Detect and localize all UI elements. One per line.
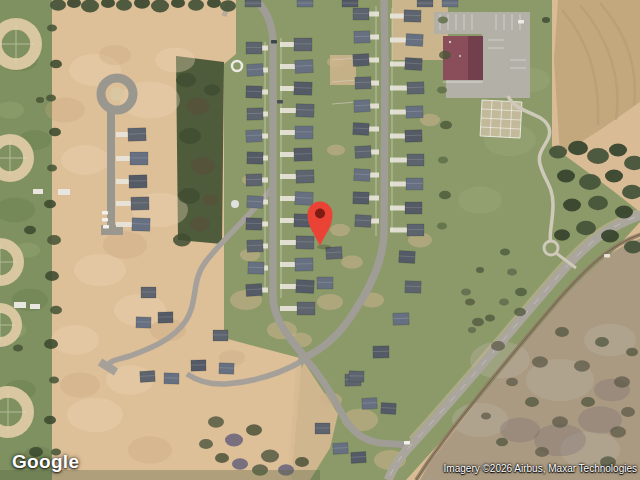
house [353,123,370,136]
house [246,42,262,54]
house [140,371,156,383]
house [417,0,433,7]
house [315,423,330,434]
house [131,197,149,210]
house [129,175,147,188]
house [355,215,372,228]
house [248,262,264,275]
google-logo[interactable]: Google [12,451,79,473]
house [442,0,458,7]
house [362,398,378,410]
house [353,192,369,205]
house [294,148,312,162]
house [355,146,372,159]
house [405,58,423,71]
house [128,128,146,142]
pin-inner-dot [315,209,325,219]
house [381,403,397,415]
house [294,38,312,51]
house [294,82,312,96]
house [132,218,150,232]
satellite-imagery [0,0,640,480]
house [405,281,421,294]
house [219,363,234,375]
house [295,60,314,74]
house [246,218,262,230]
house [246,174,262,186]
house [247,64,264,77]
house [353,8,369,20]
house [354,100,371,113]
house [296,170,314,184]
house [405,202,422,214]
house [317,277,333,289]
intersection [298,352,310,364]
house [351,452,367,464]
house [399,251,416,264]
house [246,86,262,99]
house [349,371,364,382]
house [353,54,370,67]
house [296,280,315,294]
house [342,0,358,7]
house [247,196,264,209]
house [247,240,263,253]
house [297,302,315,315]
house [164,373,179,384]
house [405,130,422,143]
house [247,108,263,120]
house [407,154,424,166]
house [295,192,314,206]
house [130,152,148,165]
house [245,0,261,7]
house [246,284,263,297]
imagery-attribution: Imagery ©2026 Airbus, Maxar Technologies [444,463,637,474]
map-canvas[interactable]: Google Imagery ©2026 Airbus, Maxar Techn… [0,0,640,480]
house [213,330,228,341]
house [296,104,314,118]
backyard-trampoline [231,200,239,208]
house [295,126,313,139]
house [407,224,424,236]
house [296,236,314,249]
house [141,287,156,298]
house [295,258,313,271]
house [247,152,263,164]
house [333,443,349,455]
house [407,82,424,95]
house [354,169,371,182]
house [373,346,389,358]
house [404,10,421,22]
house [393,313,409,326]
house [136,317,151,328]
house [297,0,313,7]
pin-shadow [317,245,331,250]
house [406,178,423,190]
house [406,34,424,47]
house [158,312,173,323]
house [246,130,263,143]
house [406,106,423,119]
red-roof-building [443,36,483,82]
house [354,31,370,44]
house [355,77,371,90]
house [191,360,206,371]
